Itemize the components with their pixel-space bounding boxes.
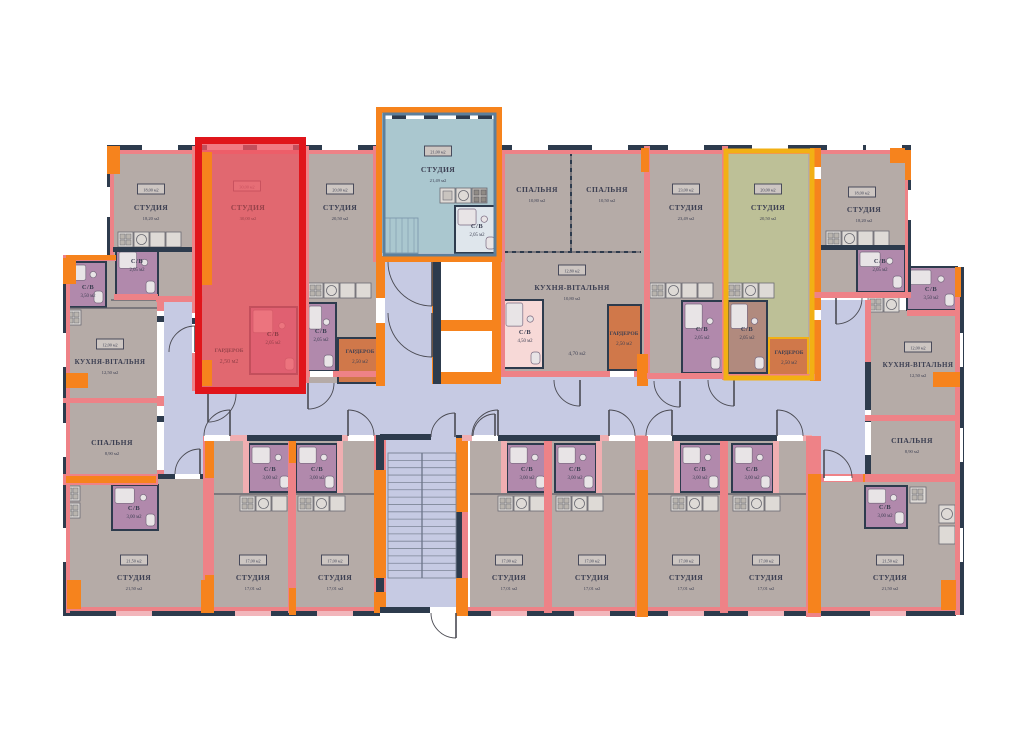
svg-text:3,00 м2: 3,00 м2: [877, 514, 893, 519]
svg-text:2,05 м2: 2,05 м2: [313, 338, 329, 343]
svg-text:КУХНЯ-ВІТАЛЬНЯ: КУХНЯ-ВІТАЛЬНЯ: [534, 283, 610, 292]
svg-text:3,00 м2: 3,00 м2: [309, 476, 325, 481]
svg-text:СТУДИЯ: СТУДИЯ: [323, 203, 357, 212]
svg-text:СТУДИЯ: СТУДИЯ: [575, 573, 609, 582]
svg-text:3,50 м2: 3,50 м2: [923, 296, 939, 301]
svg-text:С/В: С/В: [694, 466, 707, 473]
svg-text:СТУДИЯ: СТУДИЯ: [749, 573, 783, 582]
svg-text:СТУДИЯ: СТУДИЯ: [421, 165, 455, 174]
svg-text:С/В: С/В: [471, 223, 484, 230]
svg-text:2,50 м2: 2,50 м2: [352, 360, 368, 365]
svg-text:С/В: С/В: [131, 258, 144, 265]
svg-text:ГАРДЕРОБ: ГАРДЕРОБ: [775, 350, 804, 356]
svg-text:3,00 м2: 3,00 м2: [519, 476, 535, 481]
svg-text:С/В: С/В: [741, 326, 754, 333]
svg-text:СТУДИЯ: СТУДИЯ: [847, 205, 881, 214]
svg-text:ГАРДЕРОБ: ГАРДЕРОБ: [610, 331, 639, 337]
svg-text:СТУДИЯ: СТУДИЯ: [231, 203, 265, 212]
svg-text:СТУДИЯ: СТУДИЯ: [318, 573, 352, 582]
svg-text:С/В: С/В: [264, 466, 277, 473]
svg-text:3,00 м2: 3,00 м2: [567, 476, 583, 481]
svg-text:СТУДИЯ: СТУДИЯ: [134, 203, 168, 212]
svg-text:2,50 м2: 2,50 м2: [781, 361, 797, 366]
svg-text:2,05 м2: 2,05 м2: [469, 233, 485, 238]
svg-text:С/В: С/В: [315, 328, 328, 335]
svg-text:СТУДИЯ: СТУДИЯ: [492, 573, 526, 582]
svg-text:КУХНЯ-ВІТАЛЬНЯ: КУХНЯ-ВІТАЛЬНЯ: [75, 358, 146, 366]
svg-text:СТУДИЯ: СТУДИЯ: [117, 573, 151, 582]
svg-text:СПАЛЬНЯ: СПАЛЬНЯ: [516, 185, 558, 194]
svg-text:С/В: С/В: [128, 505, 141, 512]
svg-text:4,50 м2: 4,50 м2: [517, 339, 533, 344]
svg-text:ГАРДЕРОБ: ГАРДЕРОБ: [215, 348, 244, 354]
svg-text:С/В: С/В: [267, 331, 280, 338]
svg-text:3,00 м2: 3,00 м2: [126, 515, 142, 520]
svg-text:СПАЛЬНЯ: СПАЛЬНЯ: [891, 436, 933, 445]
svg-text:2,05 м2: 2,05 м2: [265, 341, 281, 346]
svg-text:3,50 м2: 3,50 м2: [80, 294, 96, 299]
svg-text:2,05 м2: 2,05 м2: [739, 336, 755, 341]
svg-text:СПАЛЬНЯ: СПАЛЬНЯ: [91, 438, 133, 447]
svg-text:С/В: С/В: [521, 466, 534, 473]
svg-text:СТУДИЯ: СТУДИЯ: [236, 573, 270, 582]
svg-text:С/В: С/В: [569, 466, 582, 473]
svg-text:СПАЛЬНЯ: СПАЛЬНЯ: [586, 185, 628, 194]
svg-text:СТУДИЯ: СТУДИЯ: [751, 203, 785, 212]
svg-text:2,50 м2: 2,50 м2: [220, 359, 239, 365]
svg-text:С/В: С/В: [696, 326, 709, 333]
svg-text:4,70 м2: 4,70 м2: [568, 351, 585, 357]
svg-text:С/В: С/В: [874, 258, 887, 265]
svg-text:3,00 м2: 3,00 м2: [692, 476, 708, 481]
svg-text:С/В: С/В: [925, 286, 938, 293]
svg-text:2,05 м2: 2,05 м2: [872, 268, 888, 273]
svg-text:С/В: С/В: [82, 284, 95, 291]
svg-text:3,00 м2: 3,00 м2: [262, 476, 278, 481]
svg-text:2,50 м2: 2,50 м2: [616, 342, 632, 347]
svg-text:2,05 м2: 2,05 м2: [694, 336, 710, 341]
svg-text:СТУДИЯ: СТУДИЯ: [669, 573, 703, 582]
svg-text:СТУДИЯ: СТУДИЯ: [873, 573, 907, 582]
svg-text:С/В: С/В: [879, 504, 892, 511]
svg-text:С/В: С/В: [311, 466, 324, 473]
svg-text:3,00 м2: 3,00 м2: [744, 476, 760, 481]
svg-text:ГАРДЕРОБ: ГАРДЕРОБ: [346, 349, 375, 355]
svg-text:С/В: С/В: [746, 466, 759, 473]
svg-text:СТУДИЯ: СТУДИЯ: [669, 203, 703, 212]
svg-text:2,05 м2: 2,05 м2: [129, 268, 145, 273]
svg-text:С/В: С/В: [519, 329, 532, 336]
svg-text:КУХНЯ-ВІТАЛЬНЯ: КУХНЯ-ВІТАЛЬНЯ: [883, 361, 954, 369]
